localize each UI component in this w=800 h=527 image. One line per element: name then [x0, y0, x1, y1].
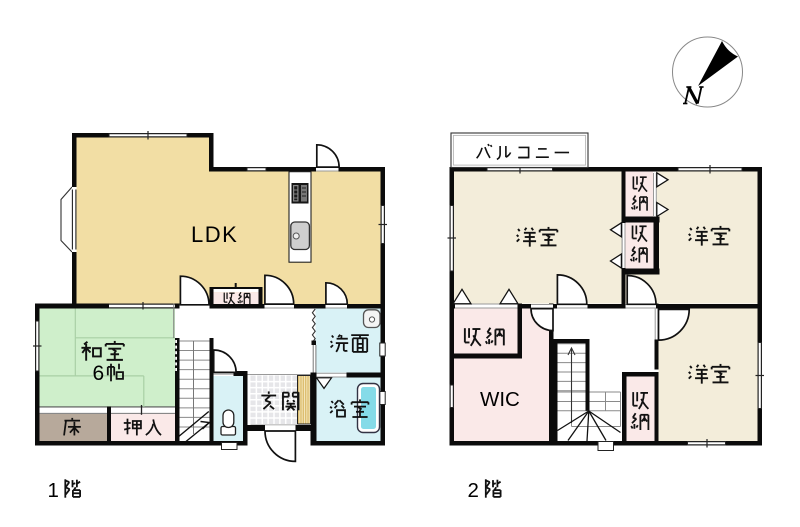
svg-text:1: 1 [48, 479, 59, 502]
svg-text:LDK: LDK [191, 222, 238, 247]
svg-text:6: 6 [93, 362, 105, 385]
svg-text:2: 2 [468, 479, 479, 502]
svg-text:WIC: WIC [480, 388, 520, 411]
